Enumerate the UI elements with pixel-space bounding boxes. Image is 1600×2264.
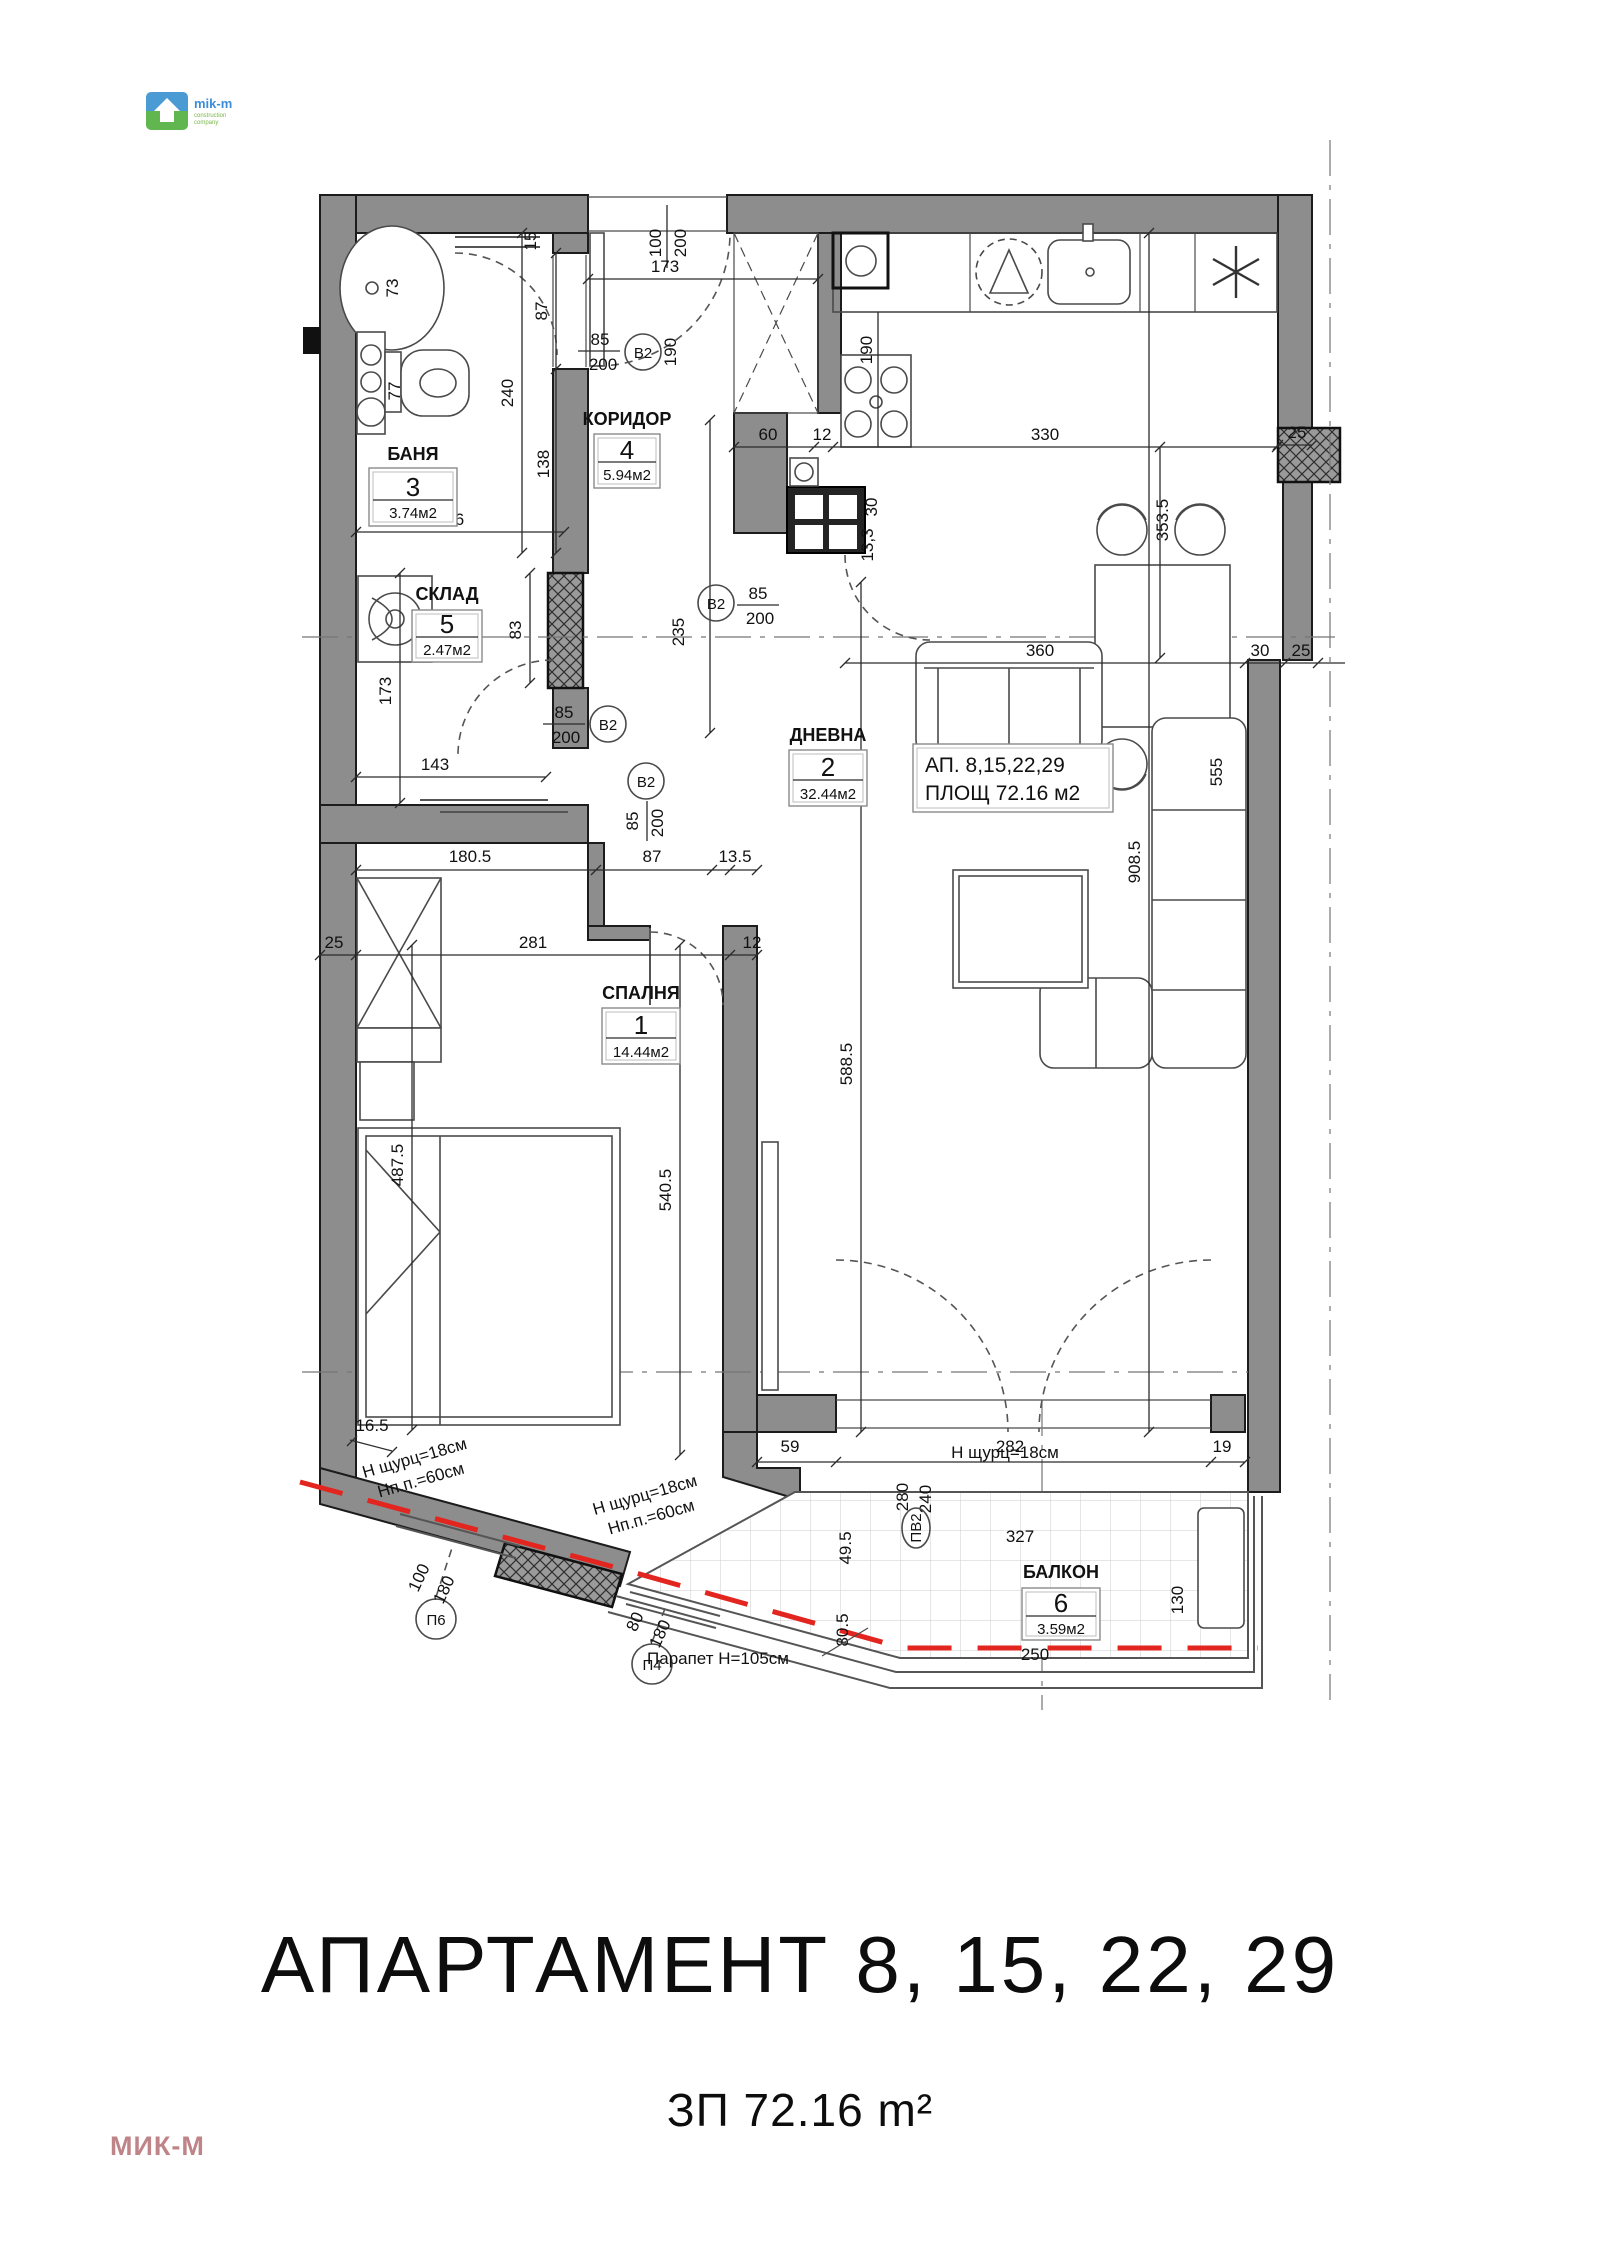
dim-entry-door-w: 100 bbox=[646, 229, 665, 257]
svg-text:В2: В2 bbox=[707, 596, 725, 613]
svg-text:85: 85 bbox=[555, 703, 574, 722]
room-label-corridor: КОРИДОР 4 5.94м2 bbox=[583, 409, 672, 488]
dim-16-5: 16.5 bbox=[355, 1416, 388, 1435]
coffee-table bbox=[953, 870, 1088, 988]
svg-text:4: 4 bbox=[620, 435, 634, 465]
logo-text: mik-m bbox=[194, 96, 232, 111]
tag-p6: П6 100 180 bbox=[404, 1548, 458, 1639]
svg-text:БАЛКОН: БАЛКОН bbox=[1023, 1562, 1099, 1582]
dim-sink: 73 bbox=[383, 279, 402, 298]
svg-text:200: 200 bbox=[552, 728, 580, 747]
logo-sub2: company bbox=[194, 120, 218, 126]
svg-text:85: 85 bbox=[623, 812, 642, 831]
logo-sub1: construction bbox=[194, 113, 226, 119]
dim-13-5: 13.5 bbox=[718, 847, 751, 866]
svg-text:14.44м2: 14.44м2 bbox=[613, 1044, 669, 1061]
svg-text:200: 200 bbox=[746, 609, 774, 628]
dim-60: 60 bbox=[759, 425, 778, 444]
dim-living-30: 30 bbox=[1251, 641, 1270, 660]
apartment-info-box: АП. 8,15,22,29 ПЛОЩ 72.16 м2 bbox=[913, 744, 1113, 812]
dim-180-5: 180.5 bbox=[449, 847, 492, 866]
svg-text:СКЛАД: СКЛАД bbox=[415, 584, 478, 604]
room-label-living: ДНЕВНА 2 32.44м2 bbox=[789, 725, 867, 806]
svg-text:В2: В2 bbox=[599, 717, 617, 734]
company-watermark: МИК-М bbox=[110, 2131, 205, 2161]
dim-bath-138: 138 bbox=[534, 450, 553, 478]
snowflake-icon bbox=[1213, 246, 1259, 298]
apartment-area: ПЛОЩ 72.16 м2 bbox=[925, 782, 1080, 805]
dim-bed-25: 25 bbox=[325, 933, 344, 952]
room-label-balcony: БАЛКОН 6 3.59м2 bbox=[1022, 1562, 1100, 1640]
svg-text:180: 180 bbox=[645, 1617, 674, 1651]
svg-text:В2: В2 bbox=[634, 345, 652, 362]
dim-13-3: 13,3 bbox=[858, 528, 877, 561]
dim-entry-door-h: 200 bbox=[671, 229, 690, 257]
dim-living-25: 25 bbox=[1292, 641, 1311, 660]
dim-80-5: 80.5 bbox=[833, 1613, 852, 1646]
floor-plan: 173 100 200 240 87 15 73 77 138 156 83 1… bbox=[0, 0, 1600, 2264]
dim-130: 130 bbox=[1168, 1586, 1187, 1614]
dim-555: 555 bbox=[1207, 758, 1226, 786]
balcony-floor bbox=[396, 1492, 1262, 1688]
dim-588-5: 588.5 bbox=[837, 1043, 856, 1086]
dim-87b: 87 bbox=[643, 847, 662, 866]
dim-bath-depth: 240 bbox=[498, 379, 517, 407]
svg-text:5: 5 bbox=[440, 609, 454, 639]
note-parapet: Парапет Н=105см bbox=[647, 1649, 789, 1668]
dim-bed-281: 281 bbox=[519, 933, 547, 952]
dim-storage-143: 143 bbox=[421, 755, 449, 774]
page-subtitle: ЗП 72.16 m² bbox=[667, 2084, 933, 2136]
svg-text:ПВ2: ПВ2 bbox=[908, 1513, 925, 1542]
svg-text:32.44м2: 32.44м2 bbox=[800, 786, 856, 803]
dim-250: 250 bbox=[1021, 1645, 1049, 1664]
room-label-storage: СКЛАД 5 2.47м2 bbox=[412, 584, 482, 662]
dim-corridor-235: 235 bbox=[669, 618, 688, 646]
dim-30: 30 bbox=[862, 498, 881, 517]
tag-b2-bedroom: В2 85 200 bbox=[623, 763, 667, 841]
svg-text:КОРИДОР: КОРИДОР bbox=[583, 409, 672, 429]
dim-corridor-190: 190 bbox=[661, 338, 680, 366]
dim-entry-width: 173 bbox=[651, 257, 679, 276]
room-label-bedroom: СПАЛНЯ 1 14.44м2 bbox=[602, 983, 680, 1064]
svg-text:80: 80 bbox=[622, 1609, 647, 1634]
svg-text:2.47м2: 2.47м2 bbox=[423, 642, 471, 659]
dim-59: 59 bbox=[781, 1437, 800, 1456]
svg-text:П6: П6 bbox=[426, 1612, 445, 1629]
dim-storage-83: 83 bbox=[506, 621, 525, 640]
dim-bath-door: 87 bbox=[532, 302, 551, 321]
tv-bench bbox=[762, 1142, 778, 1390]
shaft-x bbox=[734, 233, 818, 413]
note-shurts-right: Н щурц=18см bbox=[951, 1443, 1059, 1462]
svg-text:3.74м2: 3.74м2 bbox=[389, 505, 437, 522]
dim-353-5: 353.5 bbox=[1153, 499, 1172, 542]
kitchen-sink bbox=[1048, 240, 1130, 304]
dim-327: 327 bbox=[1006, 1527, 1034, 1546]
balcony-bench bbox=[1198, 1508, 1244, 1628]
page-title: АПАРТАМЕНТ 8, 15, 22, 29 bbox=[261, 1920, 1339, 2009]
svg-text:СПАЛНЯ: СПАЛНЯ bbox=[602, 983, 680, 1003]
svg-text:В2: В2 bbox=[637, 774, 655, 791]
tag-p4: П4 80 180 bbox=[622, 1606, 674, 1684]
dim-19: 19 bbox=[1213, 1437, 1232, 1456]
dim-stove-190: 190 bbox=[857, 336, 876, 364]
apartment-number: АП. 8,15,22,29 bbox=[925, 754, 1065, 777]
dim-12: 12 bbox=[813, 425, 832, 444]
svg-text:200: 200 bbox=[589, 355, 617, 374]
dim-49-5: 49.5 bbox=[836, 1531, 855, 1564]
nightstand bbox=[360, 1062, 414, 1120]
dim-wc: 77 bbox=[385, 382, 404, 401]
dim-540-5: 540.5 bbox=[656, 1169, 675, 1212]
dim-living-360: 360 bbox=[1026, 641, 1054, 660]
dim-280: 280 bbox=[893, 1483, 912, 1511]
dim-shelf: 15 bbox=[521, 232, 540, 251]
svg-text:ДНЕВНА: ДНЕВНА bbox=[790, 725, 867, 745]
svg-text:3: 3 bbox=[406, 472, 420, 502]
svg-text:2: 2 bbox=[821, 752, 835, 782]
dim-487-5: 487.5 bbox=[388, 1144, 407, 1187]
svg-text:5.94м2: 5.94м2 bbox=[603, 467, 651, 484]
room-label-bath: БАНЯ 3 3.74м2 bbox=[369, 444, 457, 526]
dim-wall-25: 25 bbox=[1288, 423, 1307, 442]
svg-text:100: 100 bbox=[404, 1561, 433, 1595]
svg-text:3.59м2: 3.59м2 bbox=[1037, 1621, 1085, 1638]
svg-text:БАНЯ: БАНЯ bbox=[387, 444, 438, 464]
svg-text:6: 6 bbox=[1054, 1588, 1068, 1618]
svg-text:180: 180 bbox=[429, 1573, 458, 1607]
dim-storage-173: 173 bbox=[376, 677, 395, 705]
dim-bed-12: 12 bbox=[743, 933, 762, 952]
dim-908-5: 908.5 bbox=[1125, 841, 1144, 884]
dim-kitchen-330: 330 bbox=[1031, 425, 1059, 444]
svg-text:85: 85 bbox=[591, 330, 610, 349]
sofa-l-vertical bbox=[1152, 718, 1246, 1068]
logo: mik-m construction company bbox=[146, 92, 232, 130]
svg-text:200: 200 bbox=[648, 809, 667, 837]
svg-text:85: 85 bbox=[749, 584, 768, 603]
svg-text:1: 1 bbox=[634, 1010, 648, 1040]
page: 173 100 200 240 87 15 73 77 138 156 83 1… bbox=[0, 0, 1600, 2264]
